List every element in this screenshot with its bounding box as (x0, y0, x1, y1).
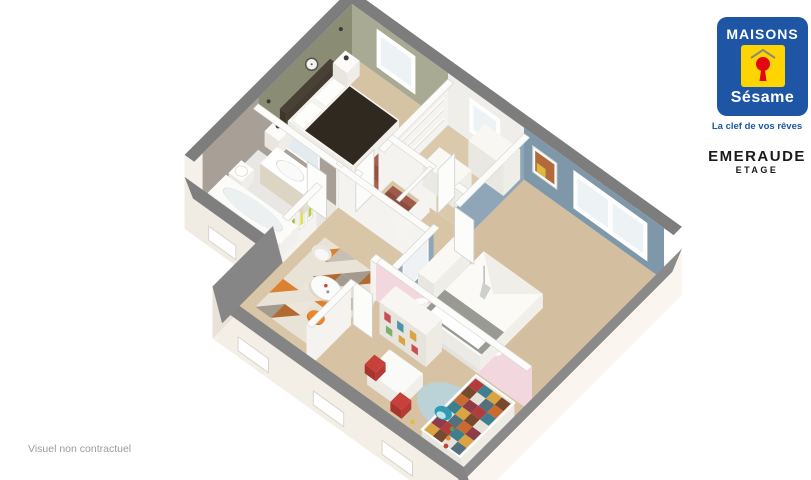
roof-icon (751, 50, 775, 58)
keyhole-icon (741, 45, 785, 87)
table-decor (326, 290, 329, 293)
brand-tagline: La clef de vos rêves (703, 121, 811, 132)
toy-icon (446, 436, 451, 441)
page: MAISONS Sésame La clef de vos rêves EMER… (0, 0, 811, 480)
toy-icon (444, 444, 449, 449)
table-decor (324, 284, 328, 288)
plan-model-name: EMERAUDE (703, 148, 811, 165)
disclaimer-text: Visuel non contractuel (28, 443, 131, 455)
plan-level-label: ETAGE (703, 165, 811, 175)
wall-lamp-icon (339, 27, 343, 31)
table-lamp-icon (344, 55, 349, 60)
toy-icon (410, 420, 415, 425)
wall-lamp-icon (267, 99, 271, 103)
keyhole-icon-svg (741, 45, 785, 87)
brand-name-script: Sésame (731, 89, 795, 106)
brand-name-top: MAISONS (726, 27, 798, 42)
floorplan-3d-visual (0, 0, 811, 480)
wall-clock-center (311, 63, 313, 65)
brand-logo: MAISONS Sésame (717, 17, 808, 116)
toy-icon (450, 427, 455, 432)
